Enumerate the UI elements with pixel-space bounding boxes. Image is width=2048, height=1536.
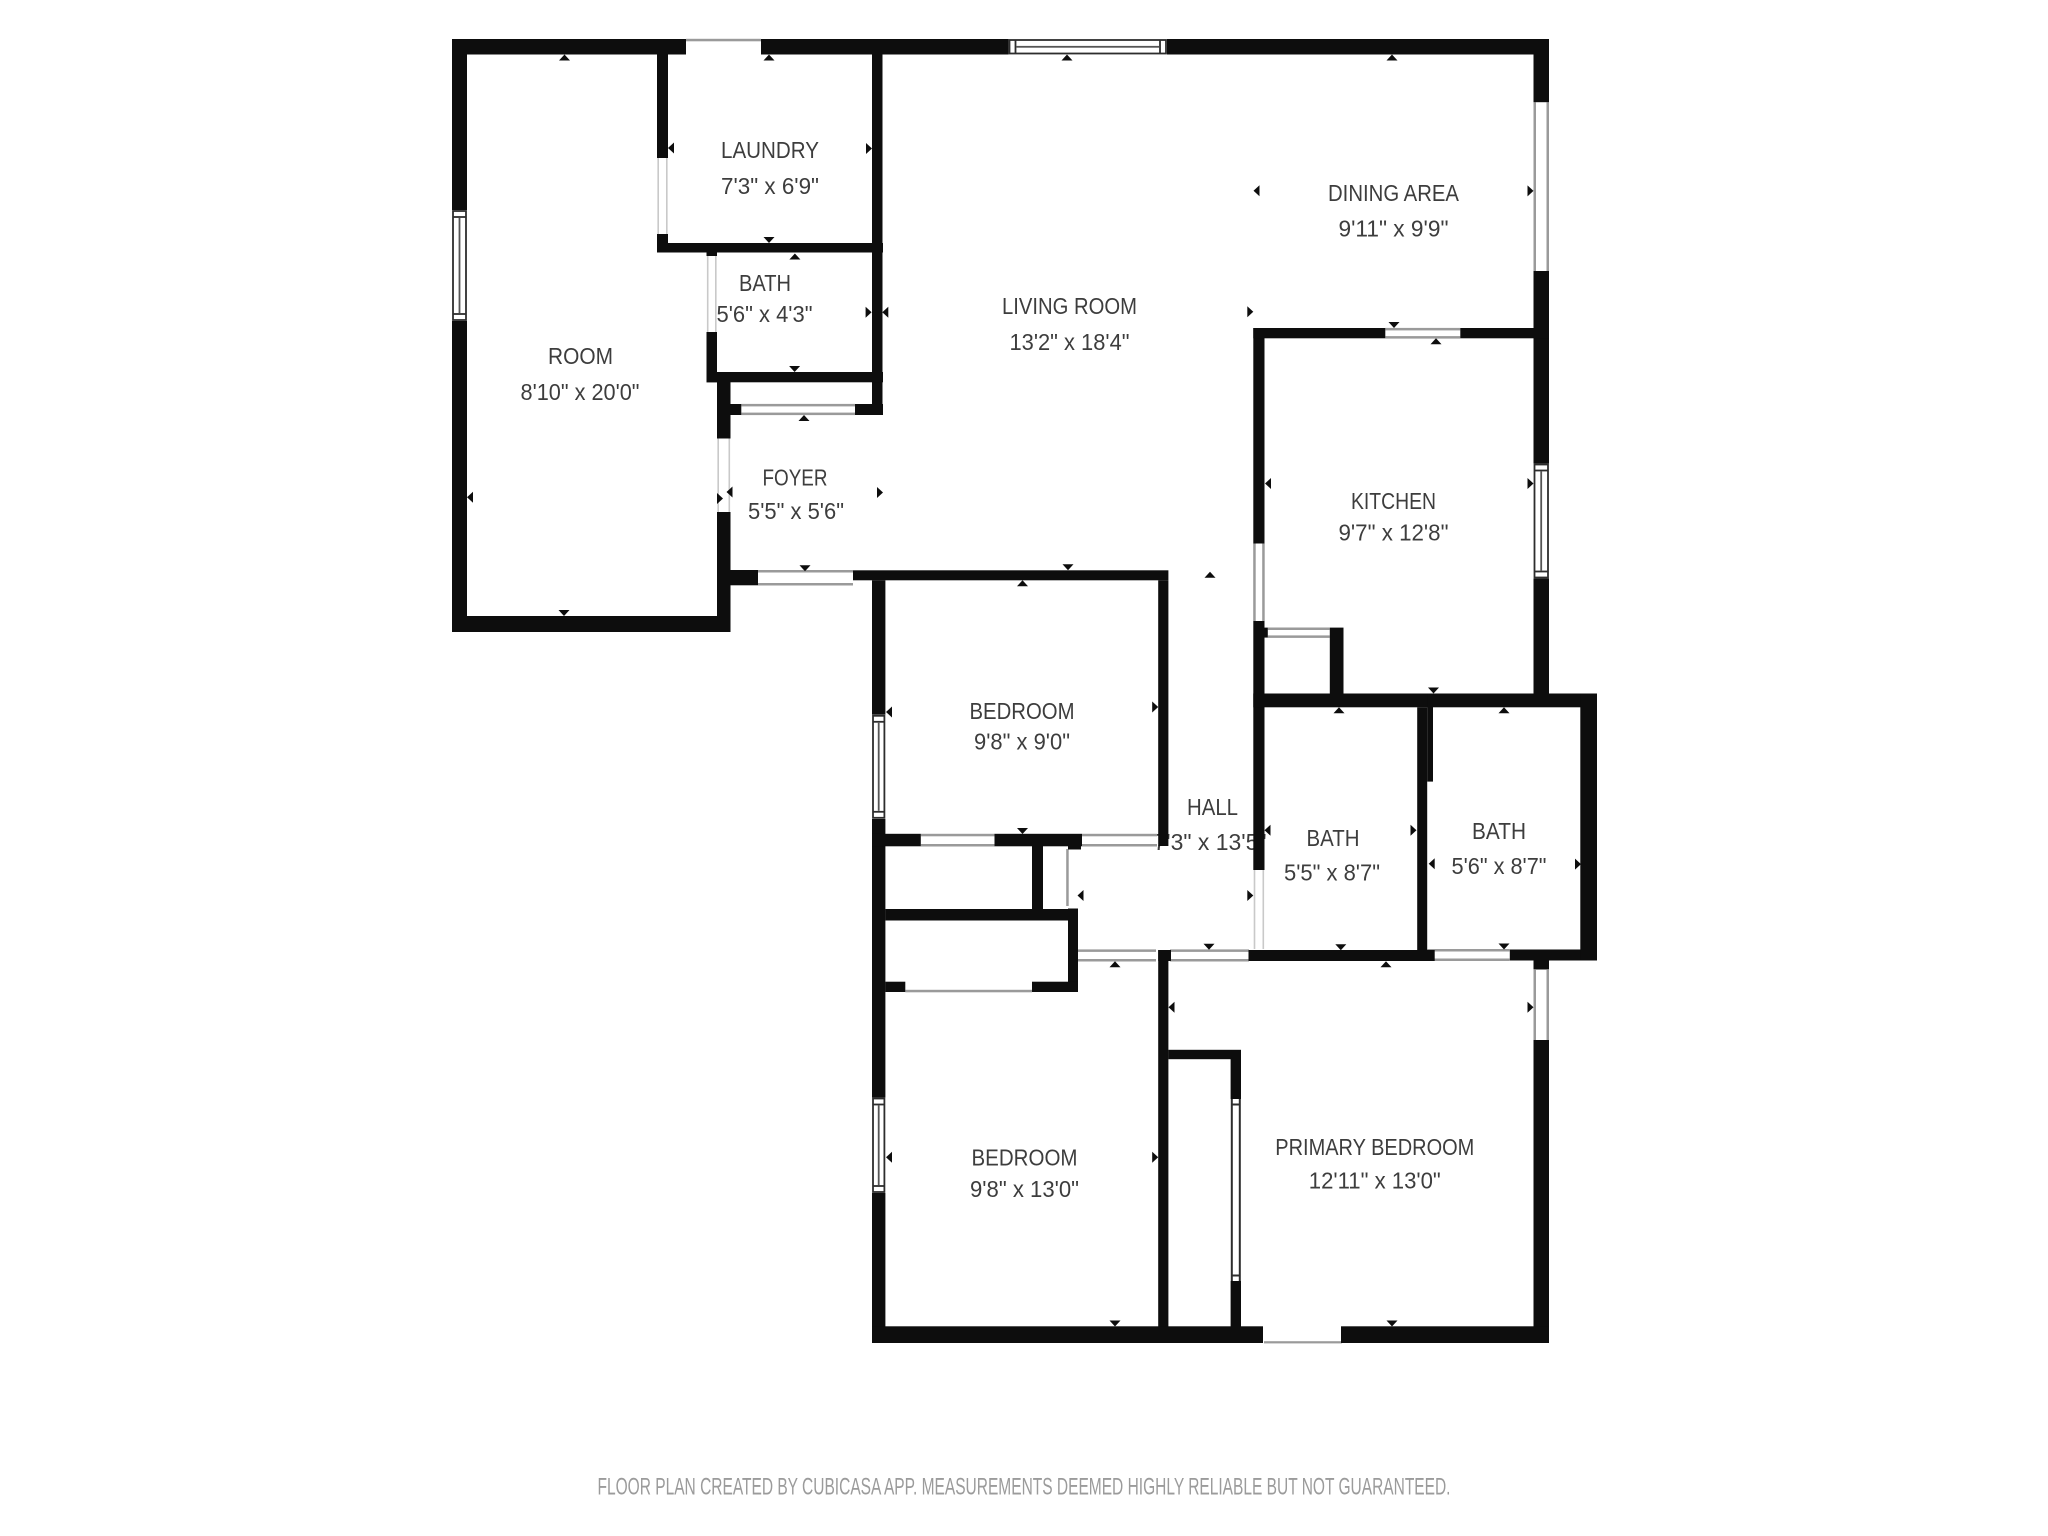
svg-text:KITCHEN: KITCHEN [1351,488,1436,514]
svg-text:9'11" x 9'9": 9'11" x 9'9" [1339,216,1449,242]
svg-text:BEDROOM: BEDROOM [972,1144,1078,1170]
svg-text:12'11" x 13'0": 12'11" x 13'0" [1309,1168,1441,1194]
svg-text:5'5" x 8'7": 5'5" x 8'7" [1284,860,1380,886]
svg-text:5'6" x 4'3": 5'6" x 4'3" [717,301,813,327]
svg-text:9'7" x 12'8": 9'7" x 12'8" [1339,520,1449,546]
svg-text:7'3" x 13'5": 7'3" x 13'5" [1154,829,1267,855]
svg-text:13'2" x 18'4": 13'2" x 18'4" [1010,329,1130,355]
svg-text:5'5" x 5'6": 5'5" x 5'6" [748,498,844,524]
svg-text:5'6" x 8'7": 5'6" x 8'7" [1452,853,1547,879]
svg-text:HALL: HALL [1187,794,1238,820]
svg-text:7'3" x 6'9": 7'3" x 6'9" [721,173,819,199]
svg-text:PRIMARY BEDROOM: PRIMARY BEDROOM [1275,1134,1474,1160]
svg-text:BATH: BATH [739,270,791,296]
svg-text:ROOM: ROOM [548,343,613,369]
svg-text:BATH: BATH [1472,818,1526,844]
svg-text:8'10" x 20'0": 8'10" x 20'0" [521,379,640,405]
svg-text:BEDROOM: BEDROOM [970,698,1075,724]
svg-text:DINING AREA: DINING AREA [1328,180,1460,206]
svg-text:9'8" x 13'0": 9'8" x 13'0" [970,1176,1079,1202]
svg-text:FLOOR PLAN CREATED BY CUBICASA: FLOOR PLAN CREATED BY CUBICASA APP. MEAS… [598,1473,1451,1500]
svg-text:LIVING ROOM: LIVING ROOM [1002,293,1137,319]
svg-text:BATH: BATH [1307,825,1360,851]
svg-text:FOYER: FOYER [763,465,828,491]
svg-text:LAUNDRY: LAUNDRY [721,137,819,163]
svg-text:9'8" x 9'0": 9'8" x 9'0" [974,729,1070,755]
